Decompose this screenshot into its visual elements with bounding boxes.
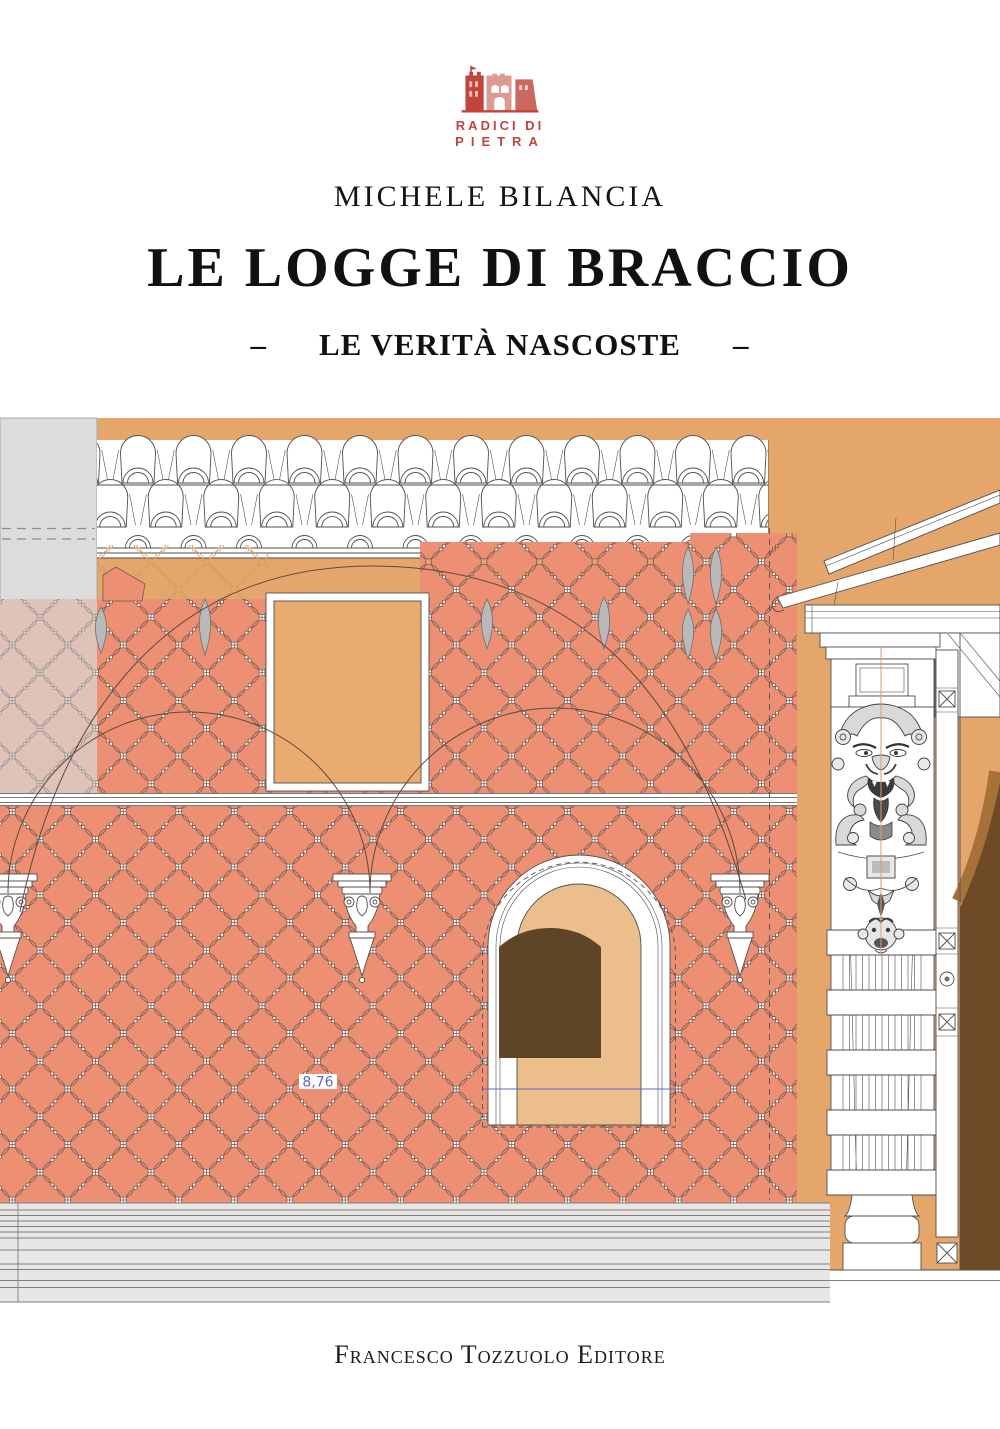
- central-arched-window: [483, 855, 676, 1127]
- logo-text-line1: RADICI DI: [0, 118, 1000, 133]
- author-name: MICHELE BILANCIA: [0, 180, 1000, 214]
- logo-text-line2: PIETRA: [0, 134, 1000, 149]
- subtitle-dash-right: –: [733, 327, 750, 363]
- subtitle-text: LE VERITÀ NASCOSTE: [319, 327, 681, 363]
- publisher-series-logo: RADICI DI PIETRA: [0, 62, 1000, 149]
- book-subtitle: – LE VERITÀ NASCOSTE –: [0, 327, 1000, 363]
- upper-window: [266, 593, 429, 791]
- publisher-name: Francesco Tozzuolo Editore: [0, 1340, 1000, 1370]
- book-title: LE LOGGE DI BRACCIO: [0, 236, 1000, 300]
- dimension-label: 8,76: [302, 1075, 333, 1091]
- entablature-cornice: [805, 605, 1000, 633]
- architectural-elevation-drawing: 8,76: [0, 413, 1000, 1303]
- subtitle-dash-left: –: [251, 327, 268, 363]
- window-opening: [499, 928, 601, 1058]
- logo-buildings-icon: [452, 62, 548, 116]
- annotation-strip: [936, 650, 958, 1263]
